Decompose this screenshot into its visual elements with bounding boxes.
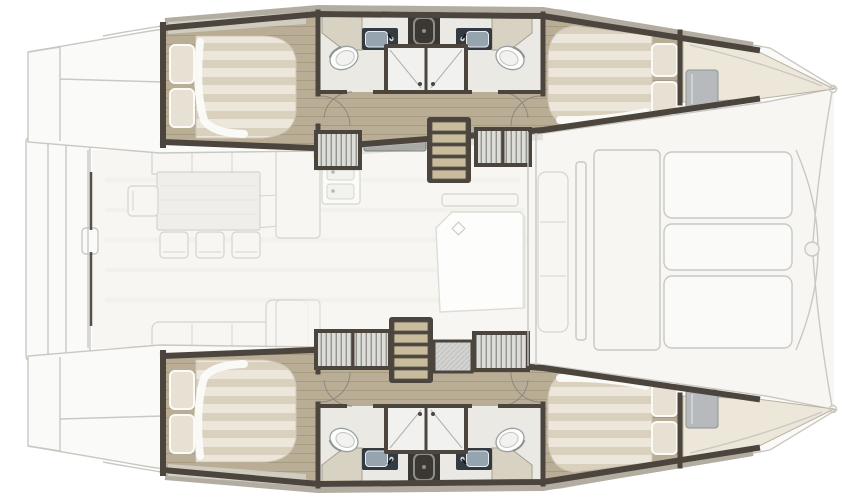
chair-2 — [196, 232, 224, 258]
crossbeam-fitting — [805, 242, 819, 256]
starboard-companionway-stairs[interactable] — [390, 318, 432, 382]
forward-bench-1 — [664, 152, 792, 218]
chair-3 — [232, 232, 260, 258]
aft-door-latch — [82, 228, 98, 254]
island-body — [436, 212, 524, 312]
hanging-locker-lower-right — [474, 333, 528, 370]
catamaran-floorplan-svg — [0, 0, 850, 499]
storage-hatch — [434, 341, 472, 372]
dining-table — [157, 172, 260, 230]
aft-swim-platform — [26, 136, 90, 362]
port-companionway-stairs[interactable] — [428, 118, 470, 182]
forward-bench-2 — [664, 224, 792, 270]
lower-counter — [276, 300, 320, 352]
hanging-locker-upper-left — [316, 132, 360, 168]
chair-1 — [160, 232, 188, 258]
forward-lounge-seat — [538, 172, 568, 332]
floorplan-stage — [0, 0, 850, 499]
island-top-bar — [442, 194, 518, 206]
forward-bench-3 — [664, 276, 792, 348]
